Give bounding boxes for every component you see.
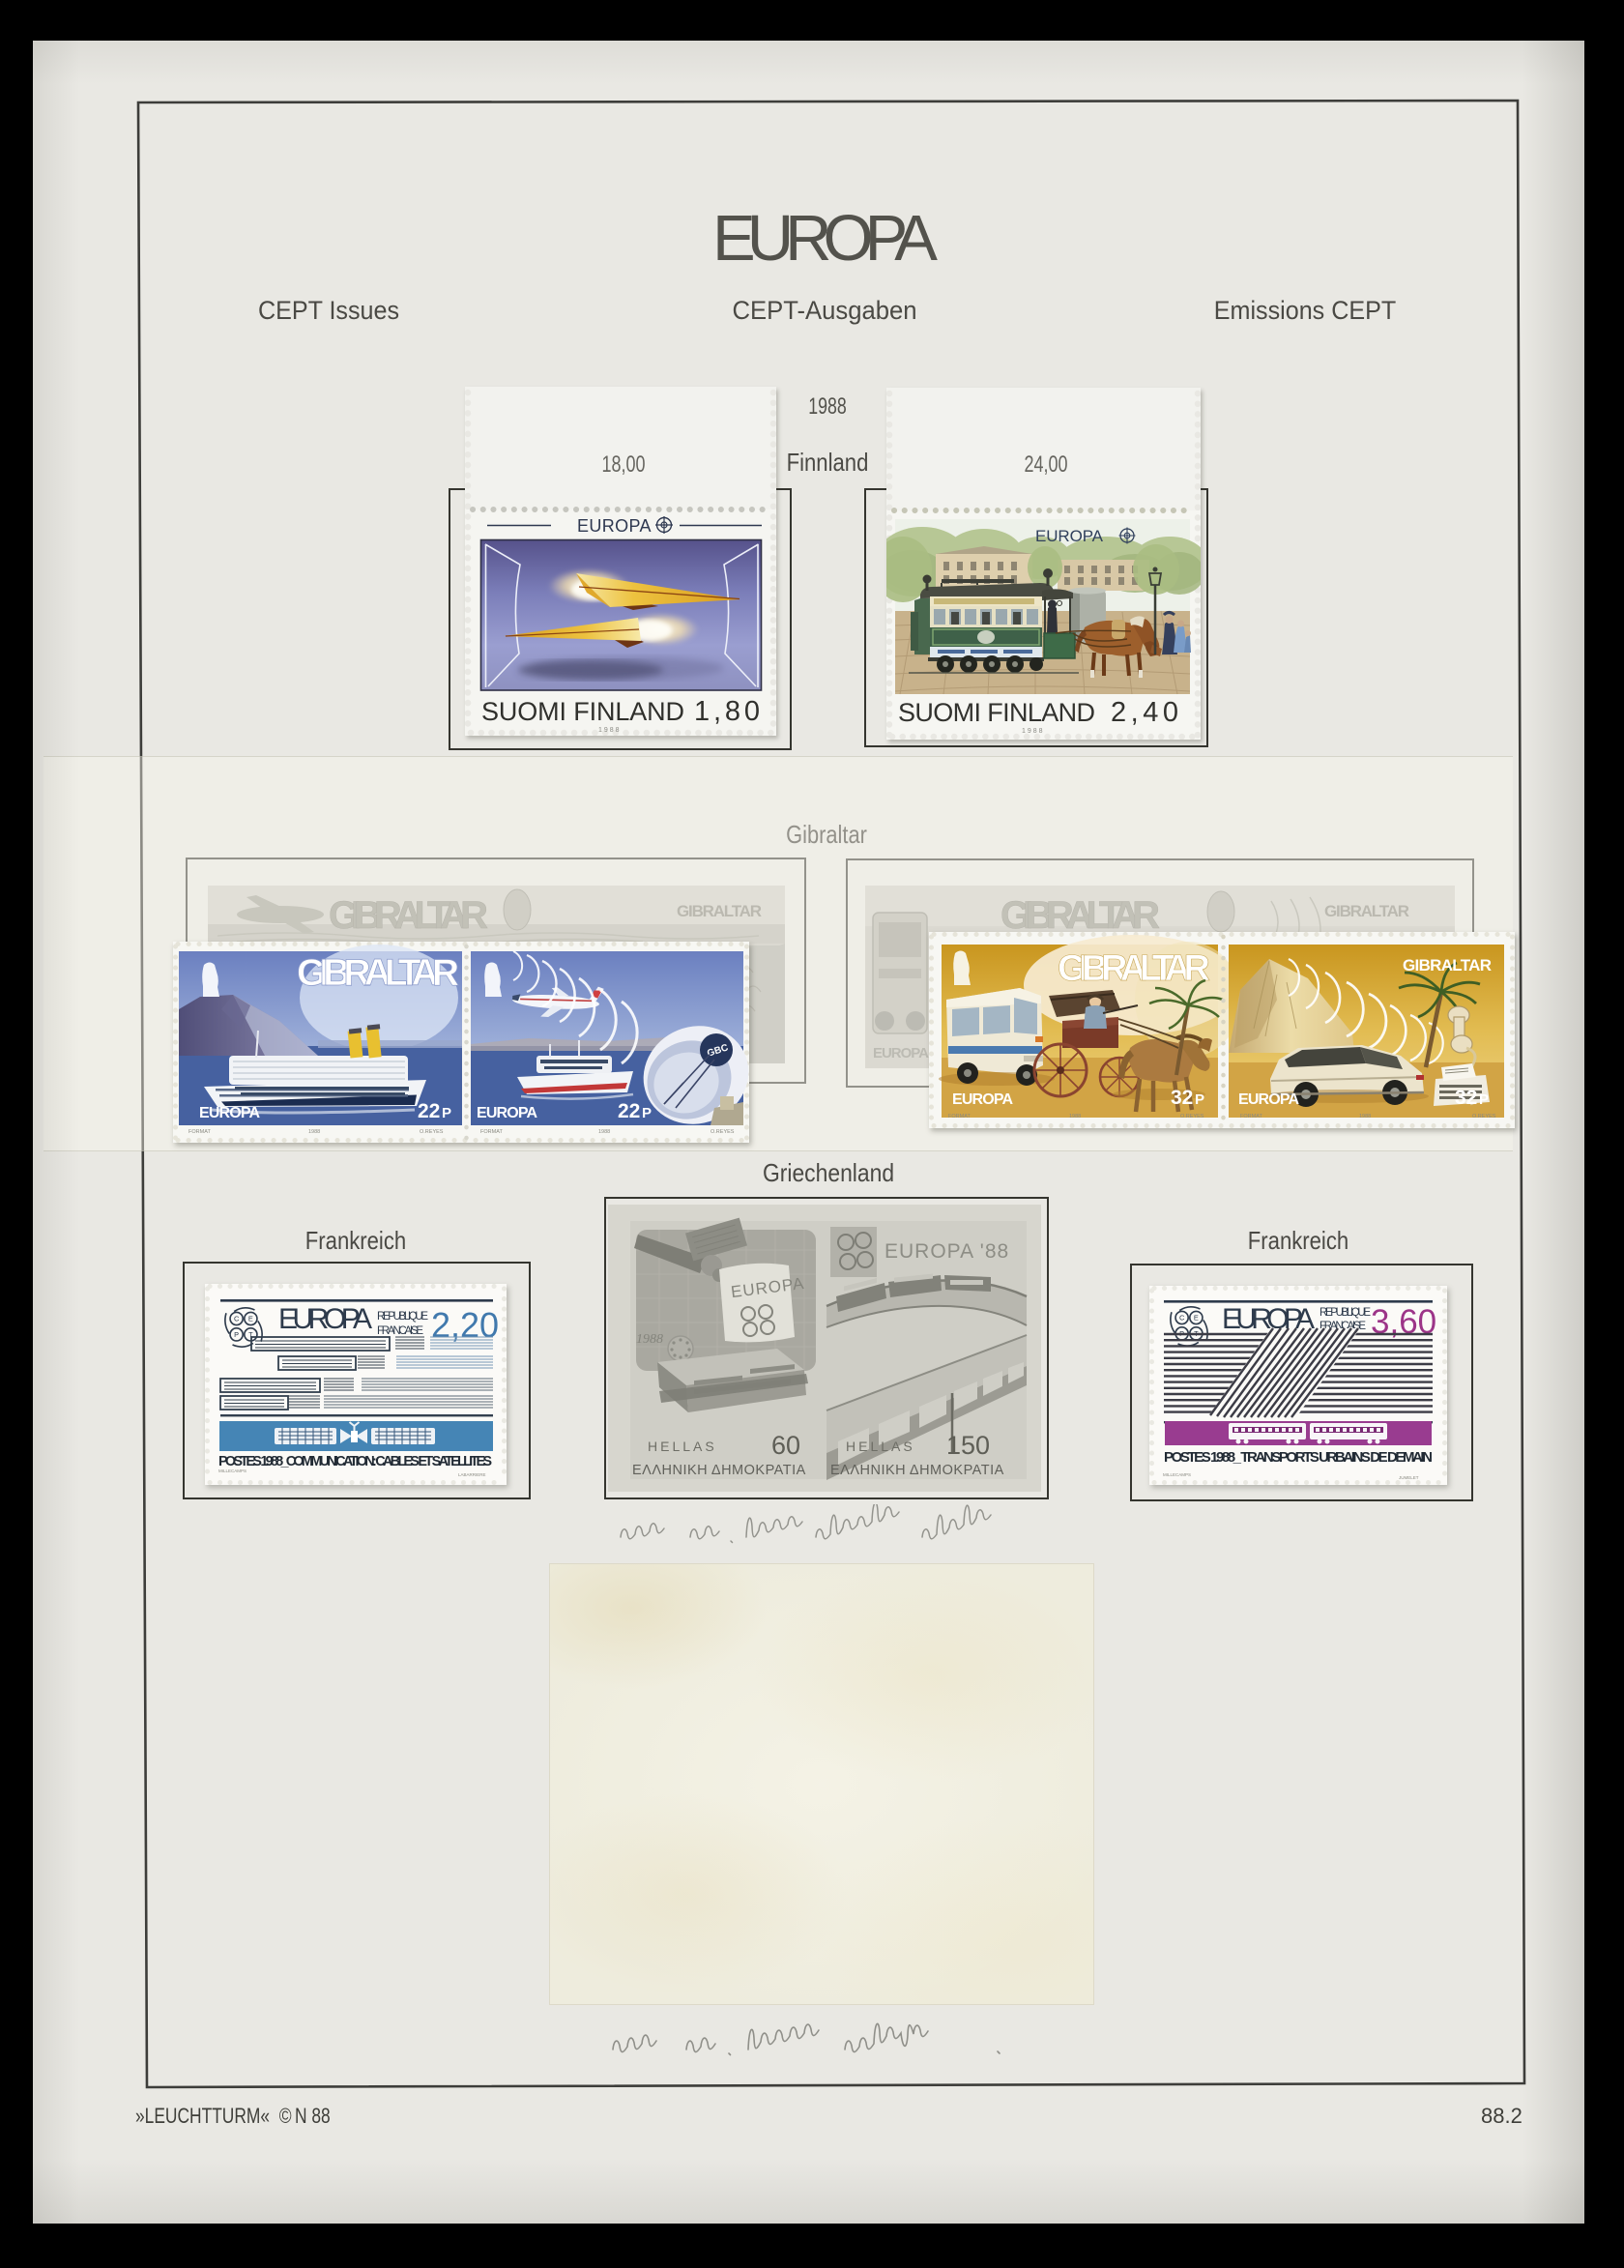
svg-text:FORMAT: FORMAT [188,1129,211,1135]
svg-text:FORMAT: FORMAT [1240,1114,1262,1119]
svg-text:2,20: 2,20 [431,1305,499,1345]
svg-text:EUROPA: EUROPA [1238,1091,1300,1108]
svg-text:E: E [248,1314,253,1323]
svg-text:REPUBLIQUE: REPUBLIQUE [377,1311,428,1323]
svg-text:ΕΛΛΗΝΙΚΗ ΔΗΜΟΚΡΑΤΙΑ: ΕΛΛΗΝΙΚΗ ΔΗΜΟΚΡΑΤΙΑ [632,1463,806,1478]
svg-text:2,40: 2,40 [1111,697,1178,728]
svg-text:1988: 1988 [598,1129,610,1135]
svg-text:EUROPA: EUROPA [278,1303,372,1335]
svg-text:22: 22 [618,1100,640,1122]
svg-text:1988: 1988 [1359,1114,1371,1119]
svg-text:E: E [1194,1313,1199,1322]
svg-text:HELLAS: HELLAS [846,1439,915,1454]
svg-text:1988: 1988 [598,727,622,734]
svg-text:EUROPA: EUROPA [199,1105,261,1121]
svg-text:LABARRIERE: LABARRIERE [458,1472,486,1477]
svg-text:GIBRALTAR: GIBRALTAR [1058,948,1210,989]
svg-text:P: P [442,1105,451,1121]
svg-text:MILLECAMPS: MILLECAMPS [1163,1472,1191,1477]
svg-text:P: P [234,1330,239,1339]
svg-text:P: P [1479,1091,1489,1108]
svg-text:GIBRALTAR: GIBRALTAR [1403,956,1492,974]
svg-text:1988: 1988 [1022,728,1045,735]
svg-text:O.REYES: O.REYES [1180,1114,1204,1119]
svg-text:O.REYES: O.REYES [1472,1114,1496,1119]
svg-text:MILLECAMPS: MILLECAMPS [218,1468,246,1473]
svg-text:22: 22 [418,1100,440,1122]
svg-text:FORMAT: FORMAT [480,1129,503,1135]
svg-text:C: C [234,1314,240,1323]
svg-text:150: 150 [946,1431,990,1460]
svg-text:1988: 1988 [308,1129,320,1135]
svg-text:EUROPA '88: EUROPA '88 [884,1240,1009,1263]
svg-text:O.REYES: O.REYES [420,1129,444,1135]
svg-text:EUROPA: EUROPA [477,1105,538,1121]
svg-text:POSTES 1988_ TRANSPORTS URBAIN: POSTES 1988_ TRANSPORTS URBAINS DE DEMAI… [1164,1449,1433,1466]
svg-text:EUROPA: EUROPA [712,202,941,275]
svg-text:HELLAS: HELLAS [648,1439,717,1454]
svg-text:32: 32 [1455,1087,1477,1109]
svg-text:FRANCAISE: FRANCAISE [377,1325,423,1337]
svg-text:SUOMI FINLAND: SUOMI FINLAND [898,698,1097,727]
svg-text:C: C [1179,1313,1185,1322]
svg-text:JUMELET: JUMELET [1399,1475,1419,1480]
svg-text:O.REYES: O.REYES [710,1129,735,1135]
svg-text:P: P [642,1105,652,1121]
svg-text:60: 60 [771,1431,800,1460]
svg-text:EUROPA: EUROPA [1035,527,1106,545]
svg-text:ΕΛΛΗΝΙΚΗ ΔΗΜΟΚΡΑΤΙΑ: ΕΛΛΗΝΙΚΗ ΔΗΜΟΚΡΑΤΙΑ [830,1463,1004,1478]
svg-text:EUROPA: EUROPA [952,1091,1014,1108]
svg-text:1988: 1988 [1069,1114,1081,1119]
svg-text:32: 32 [1171,1087,1193,1109]
svg-text:FORMAT: FORMAT [948,1114,971,1119]
svg-text:EUROPA: EUROPA [577,516,654,536]
svg-text:SUOMI FINLAND: SUOMI FINLAND [481,697,686,726]
svg-text:1,80: 1,80 [694,696,760,727]
svg-text:P: P [1195,1091,1204,1108]
svg-text:POSTES 1988_COMMUNICATION: CAB: POSTES 1988_COMMUNICATION: CABLES ET SAT… [218,1454,492,1469]
svg-text:1988: 1988 [636,1332,663,1347]
svg-text:GIBRALTAR: GIBRALTAR [297,952,459,994]
svg-text:REPUBLIQUE: REPUBLIQUE [1319,1307,1371,1319]
